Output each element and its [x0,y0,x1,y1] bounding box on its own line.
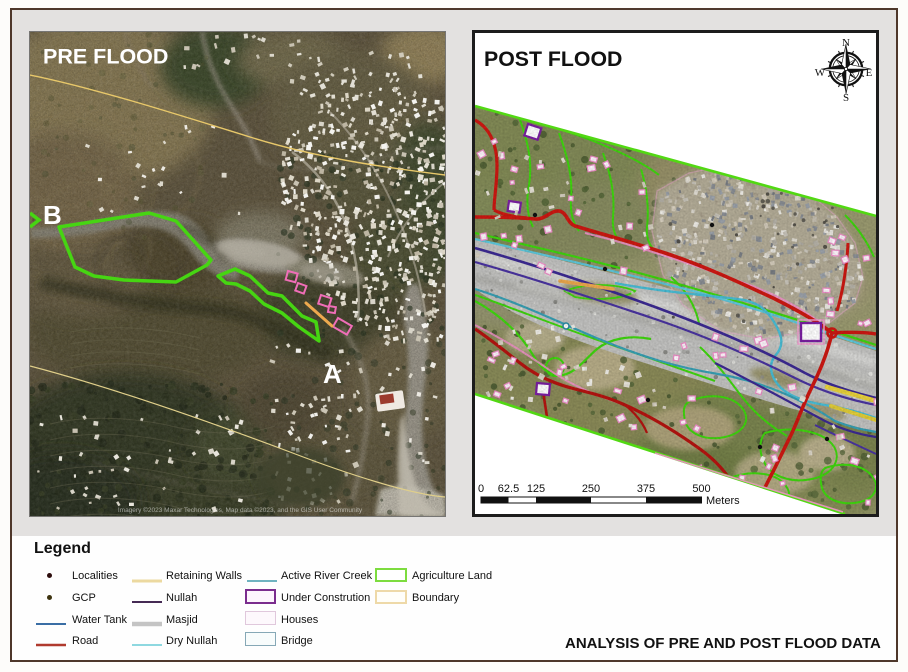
svg-text:N: N [842,37,850,49]
svg-text:0: 0 [478,483,484,495]
svg-text:S: S [843,92,849,104]
svg-text:B: B [43,200,62,230]
svg-text:Meters: Meters [706,495,740,507]
svg-text:375: 375 [637,483,655,495]
svg-text:500: 500 [692,483,710,495]
svg-text:PRE FLOOD: PRE FLOOD [43,45,168,69]
svg-text:POST FLOOD: POST FLOOD [484,47,622,71]
svg-text:250: 250 [582,483,600,495]
svg-text:A: A [323,359,342,389]
svg-text:E: E [866,67,873,79]
svg-text:Imagery ©2023 Maxar Technologi: Imagery ©2023 Maxar Technologies, Map da… [118,506,363,514]
svg-text:125: 125 [527,483,545,495]
svg-text:62.5: 62.5 [498,483,519,495]
svg-text:W: W [815,67,826,79]
